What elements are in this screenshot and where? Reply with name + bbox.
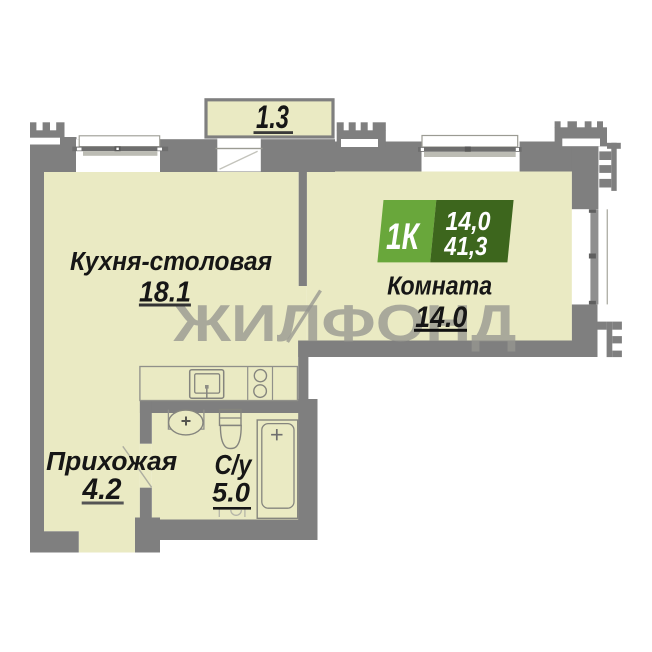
svg-text:1К: 1К	[386, 216, 421, 257]
svg-text:4.2: 4.2	[82, 473, 122, 506]
svg-text:5.0: 5.0	[212, 477, 250, 507]
svg-text:Кухня-столовая: Кухня-столовая	[70, 248, 272, 276]
svg-text:С/у: С/у	[215, 449, 253, 480]
svg-text:Прихожая: Прихожая	[46, 448, 177, 476]
svg-text:41,3: 41,3	[443, 231, 487, 261]
svg-text:1.3: 1.3	[256, 99, 289, 135]
svg-text:Комната: Комната	[387, 273, 492, 301]
